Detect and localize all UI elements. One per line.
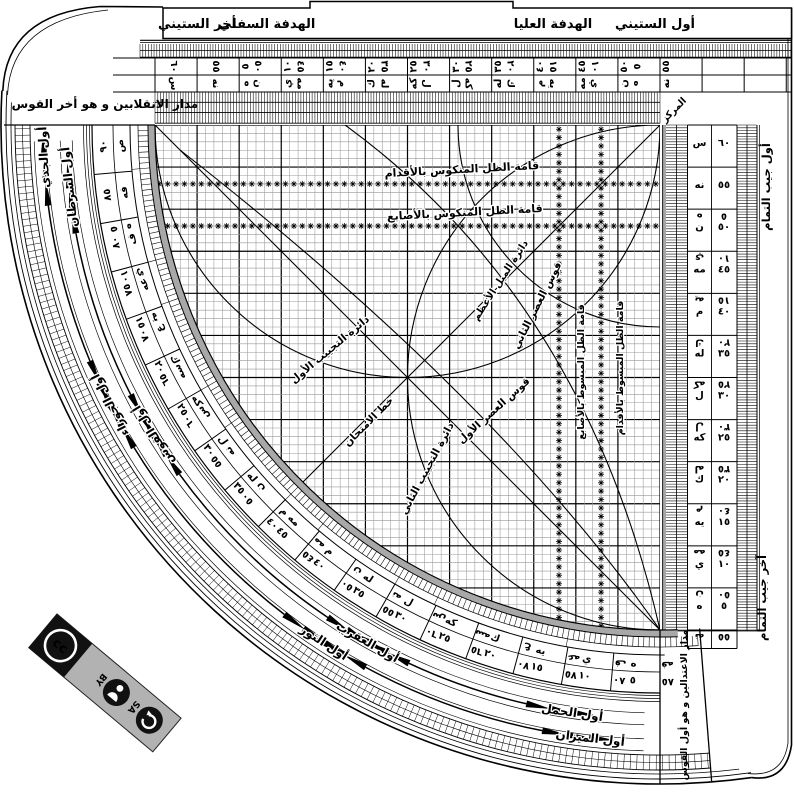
scale-cell-label: ه	[124, 222, 136, 230]
scale-cell-label: ٣٥	[718, 348, 730, 359]
scale-cell-label: ه	[697, 601, 703, 612]
scale-cell-label: ل	[421, 79, 432, 88]
scale-cell-label: ٧٠	[137, 328, 152, 343]
label-solstice-circle: مدار الانقلابين و هو أخر القوس	[12, 96, 199, 112]
scale-cell-label: كه	[693, 379, 705, 390]
scale-cell-label: م	[535, 80, 546, 87]
scale-cell-label: كه	[694, 433, 706, 444]
scale-cell-label: ل	[695, 421, 704, 432]
scale-cell-label: ي	[283, 79, 294, 88]
scale-cell-label: ١٥	[325, 60, 336, 72]
scale-cell-label: ٢٥	[718, 433, 730, 444]
scale-cell-label: ٣٠	[718, 421, 730, 432]
scale-cell-label: ي	[582, 653, 593, 665]
scale-cell-label: له	[493, 79, 504, 89]
scale-cell-label: ك	[505, 79, 516, 88]
right-scale-cells: س٦٠نه٥٥ه٥ن٥٠ي١٠مه٤٥يه١٥م٤٠ك٢٠له٣٥كه٢٥ل٣٠…	[688, 125, 738, 649]
scale-cell-label: ٤٠	[718, 505, 730, 516]
scale-cell-label: له	[695, 348, 705, 359]
scale-cell-label: عه	[137, 277, 151, 293]
scale-cell-label: يه	[547, 79, 558, 89]
scale-cell-label: ٨٠	[109, 235, 122, 249]
scale-cell-label: م	[336, 80, 347, 87]
scale-cell-label: ٤٥	[718, 547, 730, 558]
plate-corner-top-left	[3, 7, 163, 92]
scale-cell-label: ل	[215, 434, 229, 447]
scale-cell-label: ١٠	[718, 559, 730, 570]
scale-cell-label: س	[168, 77, 179, 91]
scale-cell-label: مه	[693, 547, 705, 558]
label-tajyib1: دائرة التجييب الأول	[288, 312, 373, 386]
scale-cell-label: ٢٥	[409, 60, 420, 72]
scale-cell-label: ٨٠	[613, 674, 626, 686]
scale-cell-label: س	[693, 138, 707, 149]
scale-cell-label: ل	[451, 79, 462, 88]
scale-cell-label: ٤٥	[718, 264, 730, 275]
scale-cell-label: ٦٠	[168, 60, 179, 72]
scale-cell-label: ف	[614, 657, 626, 669]
scale-cell-label: ي	[695, 253, 704, 264]
scale-cell-label: ٦٠	[718, 138, 730, 149]
scale-cell-label: ٥٥	[718, 631, 730, 642]
label-mabsut-asabi: قامة الظل المبسوط بالأصابع	[575, 304, 587, 439]
scale-cell-label: ٧٠	[516, 658, 531, 672]
label-equinox-circle: مدار الاعتدالين و هو أول القوس	[677, 630, 690, 781]
scale-cell-label: ٦٥	[157, 371, 172, 387]
scale-cell-label: ٢٥	[437, 631, 453, 646]
scale-cell-label: ع	[154, 322, 167, 334]
scale-cell-label: نه	[210, 79, 221, 89]
scale-cell-label: ٢٠	[482, 648, 497, 662]
plate-corner-top-left-inner	[8, 10, 109, 95]
scale-cell-label: ي	[589, 79, 600, 88]
tab-akhir-sittini: أخر الستيني	[158, 15, 236, 32]
scale-cell-label: يه	[695, 517, 705, 528]
scale-cell-label: ٢٠	[718, 475, 730, 486]
scale-cell-label: ٥	[721, 601, 727, 612]
scale-cell-label: له	[378, 79, 389, 89]
scale-cell-label: نه	[695, 180, 705, 191]
scale-cell-label: ٥٠	[718, 589, 730, 600]
scale-cell-label: ٣٥	[493, 60, 504, 72]
scale-cell-label: مه	[294, 77, 305, 89]
scale-cell-label: ١٠	[578, 670, 592, 683]
scale-cell-label: ص	[115, 139, 127, 153]
top-ruler-band	[140, 40, 792, 57]
scale-cell-label: ي	[134, 266, 147, 278]
scale-cell-label: ي	[695, 559, 704, 570]
scale-cell-label: نه	[661, 79, 672, 89]
scale-cell-label: ٥	[629, 675, 636, 686]
scale-cell-label: ٢٠	[367, 60, 378, 72]
scale-cell-label: نه	[390, 589, 404, 603]
scale-cell-label: م	[696, 505, 703, 516]
scale-cell-label: ٢٠	[505, 60, 516, 72]
scale-cell-label: ٩٠	[98, 140, 109, 153]
scale-cell-label: فه	[119, 186, 131, 200]
tab-awwal-sittini: أول الستيني	[615, 15, 695, 32]
label-cosine-start: أول جيب التمام	[758, 143, 774, 231]
tab-hadafa-ulya: الهدفة العليا	[514, 17, 593, 32]
scale-cell-label: م	[696, 306, 703, 317]
scale-cell-label: ١٥	[132, 315, 147, 330]
scale-cell-label: ٧٥	[121, 282, 135, 297]
scale-cell-label: ك	[367, 79, 378, 88]
scale-cell-label: ٣٥	[718, 463, 730, 474]
scale-cell-label: ل	[402, 595, 415, 609]
scale-cell-label: يه	[149, 310, 163, 323]
zodiac-label: أول القوس	[129, 402, 178, 468]
scale-cell-label: ١٠	[718, 253, 730, 264]
scale-cell-label: ٤٠	[535, 60, 546, 72]
scale-cell-label: ١٠	[118, 269, 132, 284]
scale-cell-label: كه	[463, 78, 474, 90]
scale-cell-label: ١٥	[718, 517, 730, 528]
scale-cell-label: ٥٥	[661, 60, 672, 72]
label-cosine-end: آخر جيب التمام	[755, 554, 769, 641]
scale-cell-label: ٢٠	[151, 359, 166, 375]
scale-cell-label: مه	[693, 264, 705, 275]
scale-cell-label: ن	[619, 79, 630, 88]
scale-cell-label: ع	[522, 642, 532, 655]
scale-cell-label: ٤٠	[718, 306, 730, 317]
scale-cell-label: ٥٥	[210, 60, 221, 72]
scale-cell-label: ن	[695, 589, 704, 600]
scale-cell-label: ١٥	[718, 295, 730, 306]
scale-cell-label: ن	[253, 481, 267, 495]
zodiac-label: أول الجوزاء	[88, 371, 133, 439]
label-tajyib2: دائرة التجييب الثاني	[398, 420, 457, 517]
scale-cell-label: له	[361, 571, 375, 586]
scale-cell-label: ٥٥	[718, 180, 730, 191]
scale-cell-label: نه	[223, 444, 238, 458]
label-mabsut-aqdam: قامة الظل المبسوط بالأقدام	[614, 301, 626, 436]
scale-cell-label: ف	[126, 232, 139, 246]
scale-cell-label: ٥	[107, 225, 119, 233]
scale-cell-label: ٨٥	[662, 676, 674, 687]
scale-cell-label: ٥	[631, 63, 642, 69]
zodiac-label: أول الجدي	[34, 126, 53, 188]
scale-cell-label: مه	[577, 77, 588, 89]
scale-cell-label: ٧٥	[564, 668, 578, 681]
scale-cell-label: ل	[695, 391, 704, 402]
plate-edge-right	[752, 8, 792, 778]
label-center: المركز	[659, 96, 689, 126]
scale-cell-label: ن	[252, 79, 263, 88]
scale-cell-label: ٤٥	[294, 60, 305, 72]
scale-cell-label: ١٠	[283, 60, 294, 72]
scale-cell-label: ٣٠	[718, 391, 730, 402]
cc-license-badge: cc BY SA	[29, 614, 181, 752]
zodiac-label: أول الحمل	[540, 700, 604, 725]
scale-cell-label: ٨٥	[102, 188, 114, 202]
scale-cell-label: فه	[661, 659, 674, 670]
scale-cell-label: ٢٥	[463, 60, 474, 72]
zodiac-arrow-band: أول السرطانأول القوسأول العقربأول الحملأ…	[34, 126, 644, 751]
scale-cell-label: ه	[240, 80, 251, 86]
top-tab-band: أول الستيني الهدفة العليا الهدفة السفلي …	[158, 2, 792, 39]
scale-cell-label: كه	[443, 615, 458, 630]
scale-cell-label: له	[695, 463, 705, 474]
top-scale-cells: ٦٠س٥٥نه٥ه٥٠ن١٠ي٤٥مه١٥يه٤٠م٢٠ك٣٥له٢٥كه٣٠ل…	[113, 58, 792, 92]
scale-cell-label: ك	[695, 337, 704, 348]
zodiac-label: أول الميزان	[555, 726, 626, 750]
scale-cell-label: ه	[631, 81, 642, 87]
scale-cell-label: ه	[630, 658, 637, 669]
scale-cell-label: ٥٠	[252, 60, 263, 72]
scale-cell-label: ٣٠	[421, 60, 432, 72]
scale-cell-label: مه	[311, 535, 327, 551]
scale-cell-label: عه	[566, 651, 580, 664]
scale-cell-label: ٥	[721, 210, 727, 221]
scale-cell-label: ٢٥	[718, 379, 730, 390]
scale-cell-label: ٢٠	[718, 337, 730, 348]
scale-cell-label: ٣٠	[451, 60, 462, 72]
scale-cell-label: يه	[534, 645, 546, 658]
scale-cell-label: ١٥	[547, 60, 558, 72]
scale-cell-label: يه	[325, 78, 336, 88]
scale-cell-label: ٥٠	[619, 60, 630, 72]
scale-cell-label: يه	[694, 295, 704, 306]
scale-cell-label: كه	[409, 77, 420, 89]
scale-cell-label: ٣٥	[378, 60, 389, 72]
zodiac-label: أول السرطان	[57, 146, 81, 228]
scale-cell-label: ٥	[240, 63, 251, 69]
scale-cell-label: ٥٠	[718, 222, 730, 233]
scale-cell-label: ك	[695, 475, 704, 486]
scale-cell-label: ٤٠	[336, 60, 347, 72]
scale-cell-label: ن	[350, 564, 363, 578]
scale-cell-label: ١٥	[530, 661, 544, 674]
scale-cell-label: ك	[489, 632, 501, 645]
upper-hatch-band	[155, 92, 660, 123]
label-mankus-asabi: قامة الظل المنكوس بالأصابع	[387, 201, 543, 223]
scale-cell-label: ٤٥	[577, 60, 588, 72]
scale-cell-label: ه	[696, 210, 702, 221]
scale-cell-label: ١٠	[589, 60, 600, 72]
scale-cell-label: مه	[285, 513, 301, 529]
sine-quadrant-diagram: أول الستيني الهدفة العليا الهدفة السفلي …	[0, 0, 794, 794]
scale-cell-label: ن	[695, 222, 704, 233]
